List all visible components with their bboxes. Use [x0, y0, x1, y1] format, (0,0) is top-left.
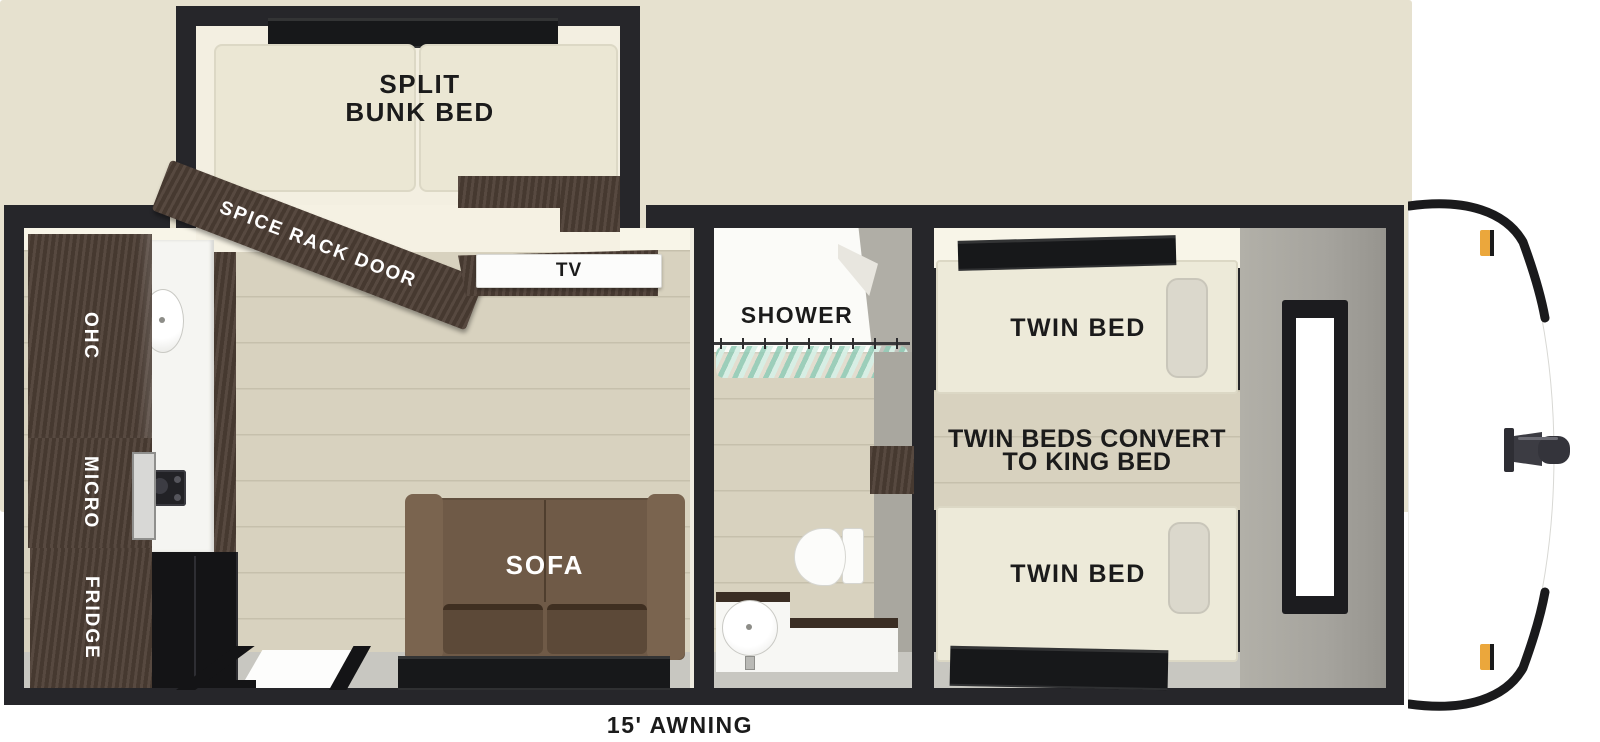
convert-line2: TO KING BED [937, 451, 1237, 474]
bath-partition-right [912, 228, 934, 688]
bedroom-window-top [958, 235, 1177, 271]
awning-label: 15' AWNING [560, 712, 800, 739]
shower-label: SHOWER [717, 302, 877, 329]
bathroom-faucet [745, 656, 755, 670]
kitchen-upper-cabinet-strip [214, 252, 236, 552]
tv: TV [476, 254, 662, 288]
sofa-window [398, 656, 670, 690]
bath-shelf [870, 446, 914, 494]
bath-right-wall-face [874, 352, 912, 652]
ohc-text: OHC [79, 312, 101, 360]
twin-bed-top-text: TWIN BED [1010, 314, 1146, 342]
shower-text: SHOWER [741, 302, 854, 328]
sofa-text: SOFA [506, 550, 585, 580]
fridge-text: FRIDGE [80, 576, 102, 660]
entry-door-threshold [176, 680, 256, 688]
bedroom-window-bottom [950, 646, 1169, 691]
micro-text: MICRO [79, 456, 101, 529]
awning-text: 15' AWNING [607, 712, 753, 738]
overhead-cabinet-label: OHC [28, 234, 152, 438]
kitchen-sink-drain [159, 317, 165, 323]
sofa-label: SOFA [475, 550, 615, 581]
bunk-media-counter-return [560, 176, 620, 232]
bunk-bed-label-line1: SPLIT [300, 70, 540, 98]
bunk-bed-label-line2: BUNK BED [300, 98, 540, 126]
bunk-bed-label: SPLIT BUNK BED [300, 70, 540, 126]
twin-bed-bottom-label: TWIN BED [928, 560, 1228, 589]
rv-floorplan: SPLIT BUNK BED SPICE RACK DOOR OHC MICRO… [0, 0, 1600, 742]
bath-partition-left [694, 228, 714, 688]
cooktop-knob-2 [174, 494, 181, 501]
sofa-arm-left [405, 494, 443, 660]
vanity-lower [790, 628, 898, 672]
twin-bed-top-label: TWIN BED [928, 314, 1228, 343]
bathroom-sink-drain [746, 624, 752, 630]
shower-curtain-hooks [720, 338, 906, 349]
tv-label: TV [556, 260, 582, 282]
toilet-bowl [794, 528, 846, 586]
fridge-label: FRIDGE [30, 548, 152, 688]
sofa-arm-right [647, 494, 685, 660]
front-cap [1408, 196, 1578, 714]
vanity-backsplash-lower [790, 618, 898, 628]
cooktop-knob [174, 476, 181, 483]
marker-light-top [1480, 230, 1491, 256]
twin-bed-bottom-text: TWIN BED [1010, 560, 1146, 588]
fridge-door-seam [194, 556, 196, 684]
marker-light-bottom [1480, 644, 1491, 670]
sofa-seat-right [547, 604, 647, 654]
convert-label: TWIN BEDS CONVERT TO KING BED [937, 428, 1237, 474]
sofa-seat-left [443, 604, 543, 654]
microwave-appliance [132, 452, 156, 540]
bedroom-front-window-glass [1296, 318, 1334, 596]
